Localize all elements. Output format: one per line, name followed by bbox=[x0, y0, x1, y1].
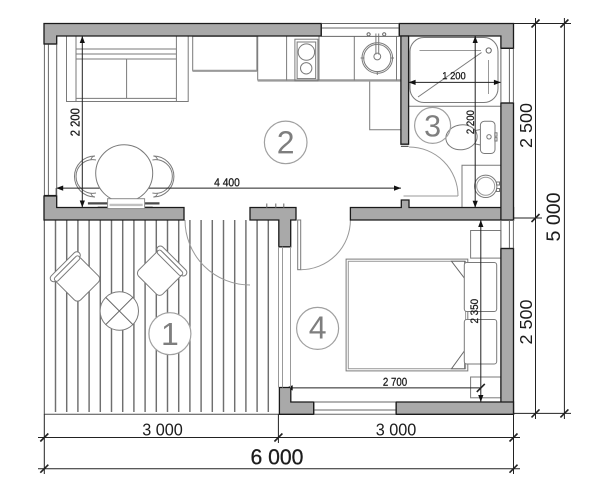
svg-text:2 350: 2 350 bbox=[469, 299, 481, 324]
svg-text:5 000: 5 000 bbox=[544, 193, 565, 242]
svg-text:3 000: 3 000 bbox=[142, 420, 183, 439]
svg-text:2 500: 2 500 bbox=[516, 299, 536, 344]
svg-text:4 400: 4 400 bbox=[214, 177, 240, 189]
svg-text:3: 3 bbox=[424, 109, 441, 143]
svg-text:6 000: 6 000 bbox=[250, 445, 303, 469]
svg-text:1 200: 1 200 bbox=[442, 71, 466, 82]
svg-text:2 700: 2 700 bbox=[383, 377, 407, 389]
svg-text:4: 4 bbox=[309, 309, 327, 345]
svg-text:3 000: 3 000 bbox=[376, 420, 417, 439]
svg-text:2: 2 bbox=[277, 124, 295, 160]
svg-text:2 500: 2 500 bbox=[516, 103, 536, 148]
svg-text:2 200: 2 200 bbox=[465, 110, 477, 134]
svg-text:2 200: 2 200 bbox=[68, 108, 83, 136]
svg-text:1: 1 bbox=[161, 316, 179, 352]
